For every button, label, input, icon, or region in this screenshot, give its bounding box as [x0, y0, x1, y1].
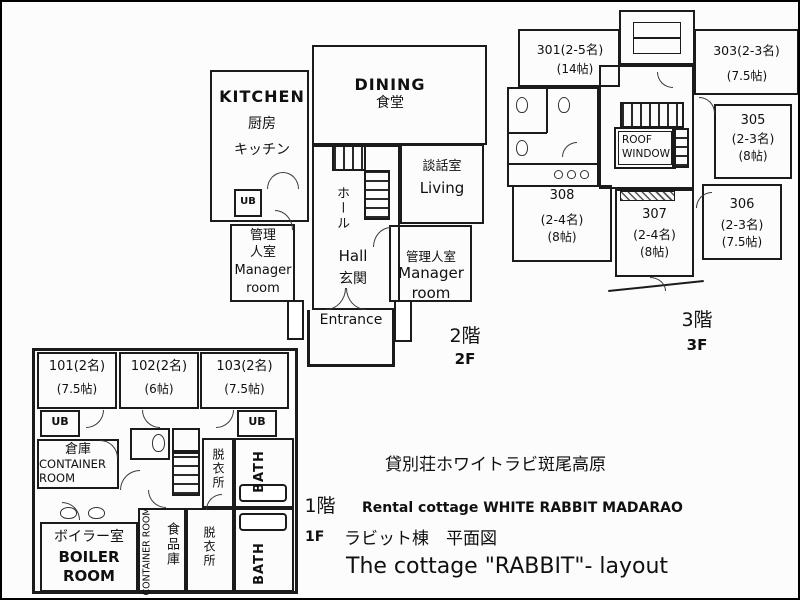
label-living-jp: 談話室 — [404, 160, 480, 175]
label-container-en1: CONTAINER — [39, 458, 119, 471]
label-boiler-en2: ROOM — [46, 568, 132, 585]
label-2f-jp: 2階 — [440, 326, 490, 348]
label-dining-en: DINING — [345, 76, 435, 94]
caption-title-jp: 貸別荘ホワイトラビ斑尾高原 — [385, 456, 625, 476]
washbasin-icon — [554, 170, 563, 179]
label-mgr-right-jp: 管理人室 — [392, 250, 470, 264]
porch-pillar-left — [287, 300, 304, 340]
label-306-size: (7.5帖) — [704, 236, 780, 250]
door-arc — [650, 277, 666, 291]
label-303-size: (7.5帖) — [712, 70, 782, 84]
washbasin-icon — [88, 507, 105, 519]
label-301-name: 301(2-5名) — [524, 43, 616, 57]
label-datsui-top: 脱衣所 — [210, 448, 227, 490]
label-305-name: 305 — [716, 114, 790, 129]
label-103-name: 103(2名) — [202, 360, 287, 375]
toilet-icon — [516, 140, 528, 156]
wall — [509, 132, 547, 134]
label-306-cap: (2-3名) — [704, 218, 780, 232]
toilet-icon — [558, 97, 570, 113]
room-303 — [694, 29, 799, 95]
door-arc — [699, 97, 715, 113]
stairs-3f — [620, 102, 684, 128]
toilet-icon — [516, 97, 528, 113]
label-308-cap: (2-4名) — [514, 213, 610, 227]
label-mgr-right-en2: room — [392, 285, 470, 302]
label-1f-jp: 1階 — [298, 496, 342, 518]
label-container-mid-en: CONTAINER ROOM — [136, 516, 158, 586]
label-pantry-jp: 食品庫 — [162, 522, 181, 567]
label-305-cap: (2-3名) — [716, 132, 790, 146]
label-mgr-left-en1: Manager — [231, 264, 295, 279]
closet-hatch — [620, 191, 675, 201]
caption-rental-en: Rental cottage WHITE RABBIT MADARAO — [362, 500, 672, 516]
label-101-size: (7.5帖) — [47, 383, 107, 397]
label-306-name: 306 — [704, 198, 780, 213]
label-genkan-jp: 玄関 — [320, 271, 386, 287]
label-2f-en: 2F — [440, 351, 490, 368]
label-kitchen-jp1: 厨房 — [234, 116, 290, 132]
stairs-upper-2f — [332, 145, 366, 171]
label-hall-jp: ホール — [332, 186, 351, 231]
wall — [633, 37, 681, 39]
caption-plan-jp: ラビット棟 平面図 — [344, 530, 544, 550]
label-roof-window-2: WINDOW — [622, 148, 672, 160]
label-307-cap: (2-4名) — [617, 228, 692, 242]
label-307-size: (8帖) — [617, 246, 692, 260]
label-entrance-en: Entrance — [312, 312, 390, 328]
label-boiler-en1: BOILER — [46, 549, 132, 566]
label-308-name: 308 — [514, 189, 610, 204]
toilet-icon — [152, 434, 165, 452]
label-mgr-left-en2: room — [231, 282, 295, 297]
label-roof-window-1: ROOF — [622, 134, 672, 146]
label-303-name: 303(2-3名) — [697, 44, 796, 58]
caption-title-en: The cottage "RABBIT"- layout — [346, 554, 706, 579]
label-living-en: Living — [404, 180, 480, 197]
wall — [546, 89, 548, 133]
label-103-size: (7.5帖) — [210, 383, 279, 397]
label-ub-right: UB — [238, 416, 276, 429]
label-101-name: 101(2名) — [39, 360, 115, 375]
label-kitchen-en: KITCHEN — [217, 88, 307, 106]
washbasin-icon — [567, 170, 576, 179]
stairs-1f — [172, 452, 200, 496]
label-102-name: 102(2名) — [121, 360, 197, 375]
label-mgr-left-jp2: 人室 — [236, 246, 290, 261]
label-container-jp: 倉庫 — [52, 443, 104, 458]
label-ub-2f: UB — [235, 196, 261, 208]
label-boiler-jp: ボイラー室 — [44, 529, 134, 545]
label-container-en2: ROOM — [39, 472, 119, 485]
porch-pillar-right — [394, 300, 412, 342]
label-mgr-right-en1: Manager — [392, 265, 470, 282]
label-hall-en: Hall — [320, 248, 386, 265]
label-308-size: (8帖) — [514, 231, 610, 245]
bathtub-icon — [239, 513, 287, 531]
label-102-size: (6帖) — [129, 383, 189, 397]
label-301-size: (14帖) — [542, 63, 608, 77]
label-307-name: 307 — [617, 208, 692, 223]
washbasin-icon — [580, 170, 589, 179]
label-bath-bottom: BATH — [248, 536, 270, 590]
label-1f-en: 1F — [305, 529, 341, 545]
stairs-lower-2f — [364, 170, 390, 220]
label-datsui-bottom: 脱衣所 — [201, 526, 218, 568]
living-open-boundary — [398, 143, 454, 145]
floorplan-document: KITCHEN 厨房 キッチン DINING 食堂 談話室 Living ホール… — [0, 0, 800, 600]
label-ub-left: UB — [41, 416, 79, 429]
label-mgr-left-jp1: 管理 — [236, 229, 290, 244]
label-kitchen-jp2: キッチン — [226, 142, 298, 158]
label-305-size: (8帖) — [716, 150, 790, 164]
wall — [509, 163, 597, 165]
stairs-landing-1f — [172, 428, 200, 452]
label-bath-top: BATH — [248, 444, 270, 498]
label-3f-en: 3F — [668, 337, 726, 354]
label-dining-jp: 食堂 — [360, 95, 420, 111]
label-3f-jp: 3階 — [668, 310, 726, 332]
